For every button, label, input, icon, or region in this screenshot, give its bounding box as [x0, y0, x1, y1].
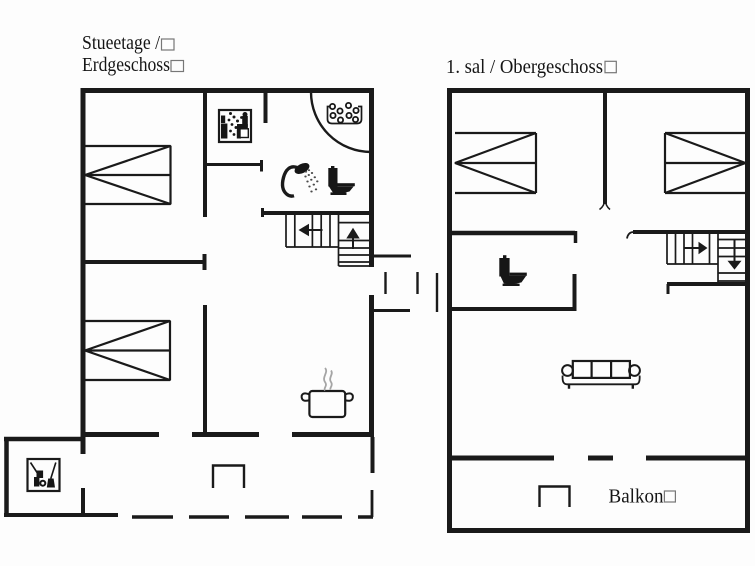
svg-text:Stueetage /: Stueetage / [82, 32, 160, 54]
svg-text:1. sal / Obergeschoss: 1. sal / Obergeschoss [446, 56, 603, 78]
svg-text:Erdgeschoss: Erdgeschoss [82, 54, 170, 76]
svg-text:Balkon: Balkon [609, 486, 664, 508]
